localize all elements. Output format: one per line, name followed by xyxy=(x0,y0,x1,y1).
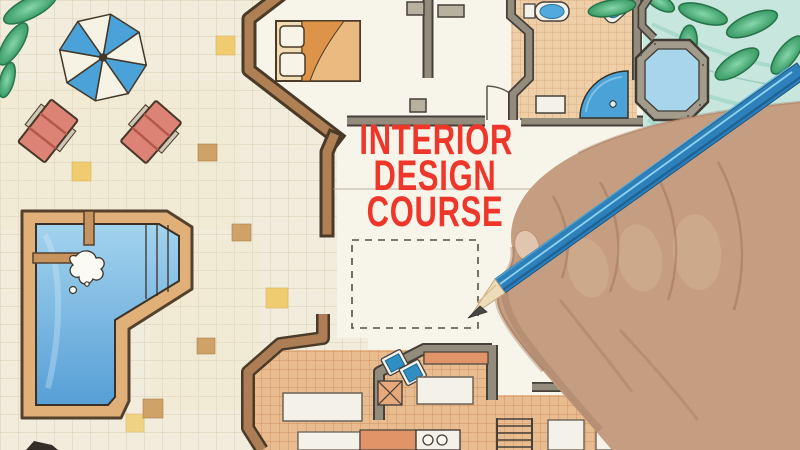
burner xyxy=(423,435,433,445)
title-overlay: INTERIOR DESIGN COURSE xyxy=(330,122,540,230)
bed xyxy=(276,21,360,81)
pillow xyxy=(280,53,305,76)
burner xyxy=(437,435,447,445)
title-line-3: COURSE xyxy=(359,194,510,230)
spa-tub xyxy=(636,40,708,120)
interior-design-course-banner: INTERIOR DESIGN COURSE xyxy=(0,0,800,450)
kitchen-island xyxy=(417,377,473,404)
kitchen-counter xyxy=(424,352,488,364)
bathroom-sink xyxy=(536,96,565,113)
kitchen-table xyxy=(283,393,362,421)
bathroom xyxy=(511,0,637,120)
pillow xyxy=(280,26,304,47)
